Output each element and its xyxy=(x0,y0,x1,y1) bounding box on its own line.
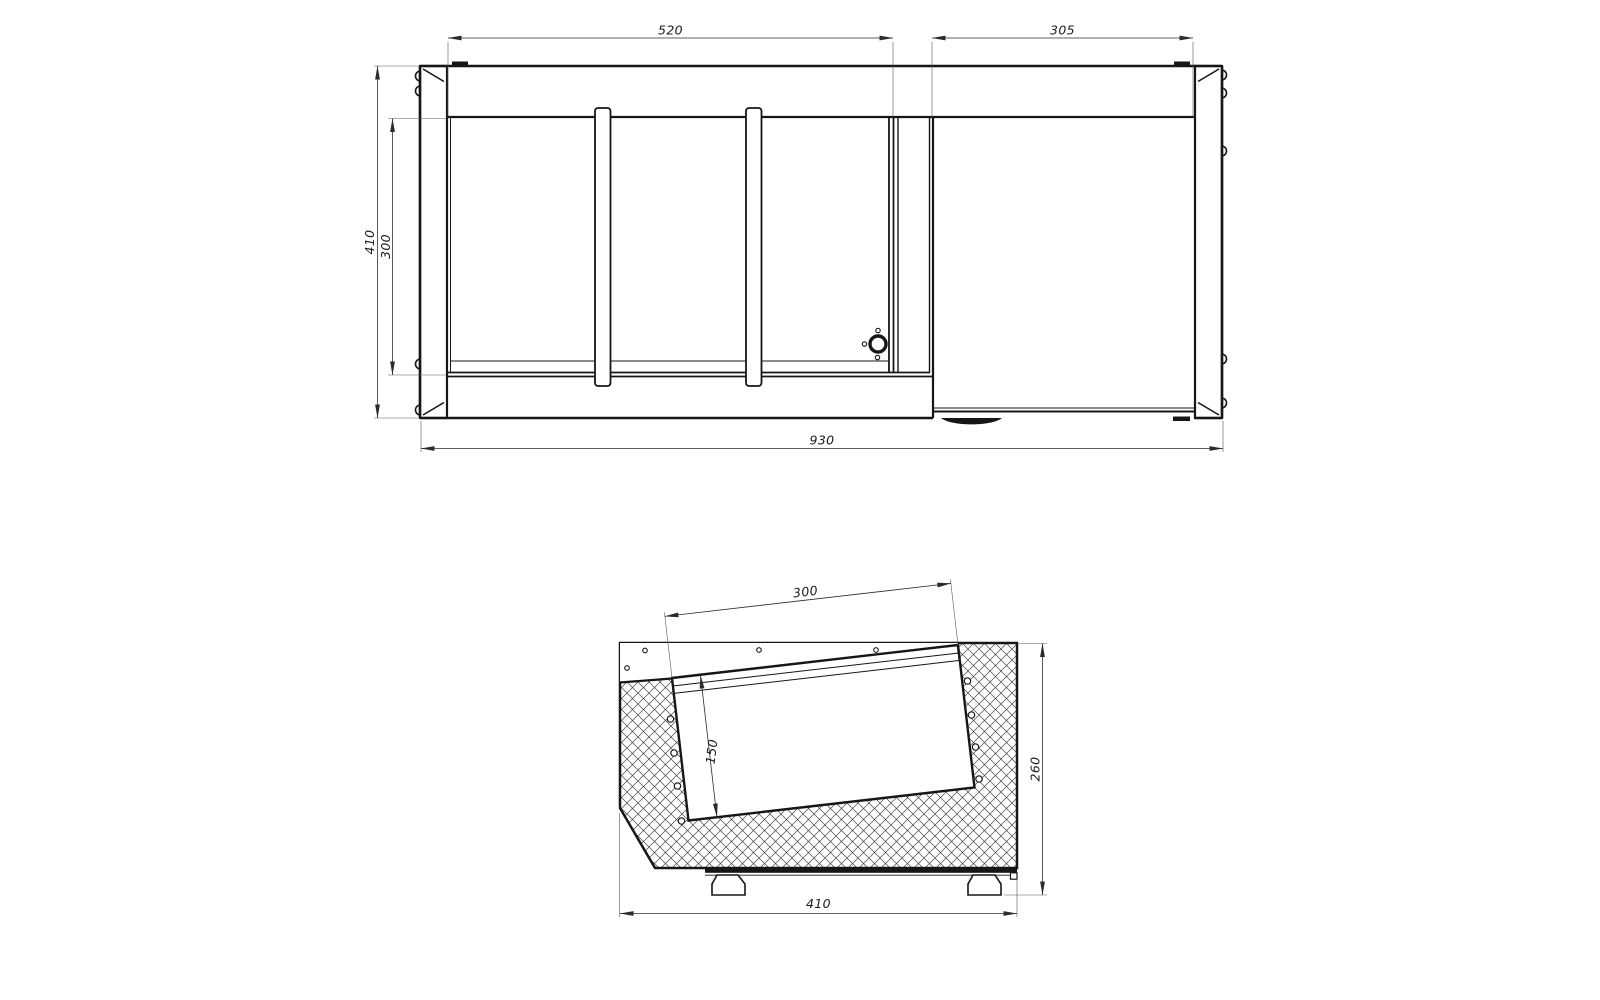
drain-fitting-icon xyxy=(862,328,886,359)
top-view: 520 305 930 410 300 xyxy=(362,23,1227,453)
edge-bump-icons xyxy=(416,70,1227,415)
cap-inner-edges xyxy=(447,66,1195,418)
foot-left xyxy=(712,875,745,895)
bottom-tab-right xyxy=(1173,417,1190,422)
dim-label-300-side: 300 xyxy=(792,583,819,601)
dim-label-260: 260 xyxy=(1028,756,1043,781)
divider-bar-1 xyxy=(595,108,611,386)
well-right-edge xyxy=(889,117,894,373)
base-rail-step xyxy=(1011,873,1018,879)
dim-label-410-side: 410 xyxy=(806,896,831,911)
divider-bar-2 xyxy=(746,108,762,386)
top-tab-right xyxy=(1174,62,1190,67)
top-tab-left xyxy=(452,62,468,67)
dim-label-300-top: 300 xyxy=(378,234,393,259)
drawing-canvas: 520 305 930 410 300 xyxy=(0,0,1600,1000)
top-view-dimensions: 520 305 930 410 300 xyxy=(362,23,1223,453)
dim-label-410-top: 410 xyxy=(362,229,377,254)
dim-label-930: 930 xyxy=(809,433,834,448)
dim-label-305: 305 xyxy=(1050,23,1075,38)
right-end-cap xyxy=(1195,66,1222,418)
dim-label-150: 150 xyxy=(703,738,721,765)
dim-label-520: 520 xyxy=(658,23,683,38)
divider-strip xyxy=(898,117,930,373)
body-side-edges xyxy=(420,66,1222,418)
foot-right xyxy=(968,875,1001,895)
foot-arc xyxy=(941,418,1002,424)
side-view: 300 150 260 410 xyxy=(620,579,1048,917)
technical-drawing: 520 305 930 410 300 xyxy=(0,0,1600,1000)
base-rail xyxy=(705,869,1017,873)
